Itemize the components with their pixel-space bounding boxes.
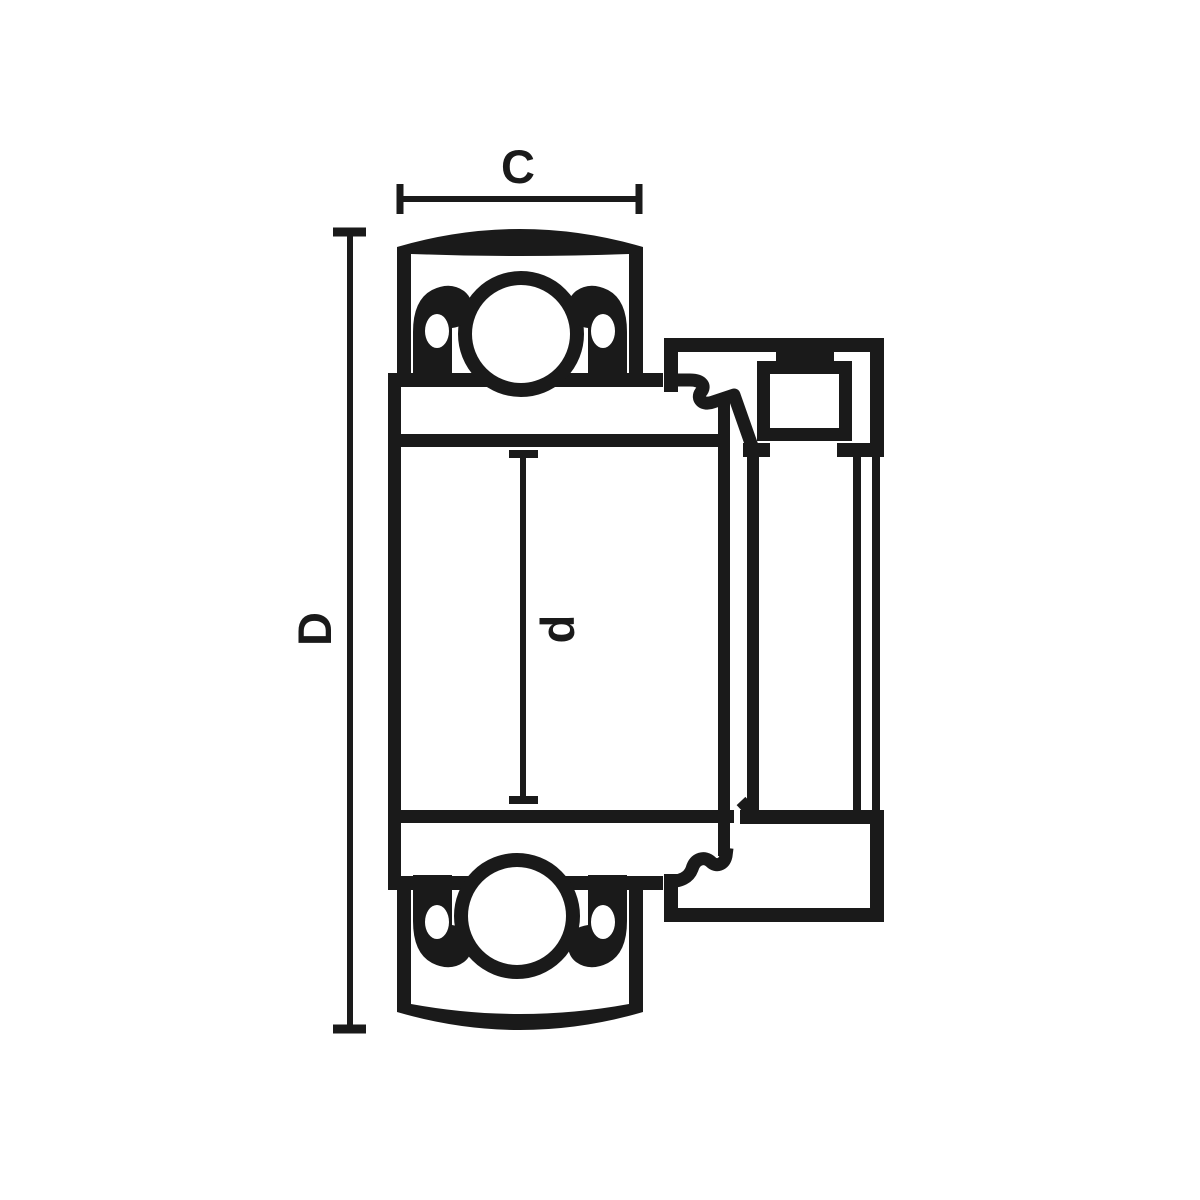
collar-top-bottom-edge-right: [837, 443, 884, 457]
dimension-label-D: D: [288, 612, 341, 646]
collar-top-right-edge: [870, 338, 884, 457]
collar-top-left-edge: [664, 338, 678, 392]
sleeve-bottom-bore-edge: [388, 810, 734, 823]
bearing-cross-section-drawing: C D d: [0, 0, 1200, 1200]
ball-top: [465, 278, 577, 390]
collar-bore-line-left: [747, 452, 759, 812]
inner-ring-end-face-line: [718, 400, 730, 856]
set-screw-body: [764, 368, 846, 435]
sleeve-top-bore-edge: [388, 434, 730, 447]
collar-bottom-top-edge: [740, 810, 884, 824]
dimension-d: d: [509, 454, 584, 800]
collar-outer-line-outer: [872, 455, 880, 812]
collar-bottom-outer-edge: [664, 908, 884, 922]
collar-top-outer-edge: [664, 338, 884, 352]
collar-top-bottom-edge-left: [743, 443, 770, 457]
dimension-C: C: [400, 140, 639, 214]
collar-outer-line-inner: [853, 455, 861, 812]
bearing-drawing-page: C D d: [0, 0, 1200, 1200]
dimension-label-d: d: [531, 615, 584, 644]
collar-bottom-right-edge: [870, 810, 884, 922]
dimension-D: D: [288, 232, 366, 1029]
drawing-root: C D d: [288, 140, 884, 1030]
ball-bottom: [461, 860, 573, 972]
dimension-label-C: C: [501, 140, 535, 193]
collar-shaft-lines: [741, 452, 880, 818]
collar-bottom-left-edge: [664, 874, 678, 922]
